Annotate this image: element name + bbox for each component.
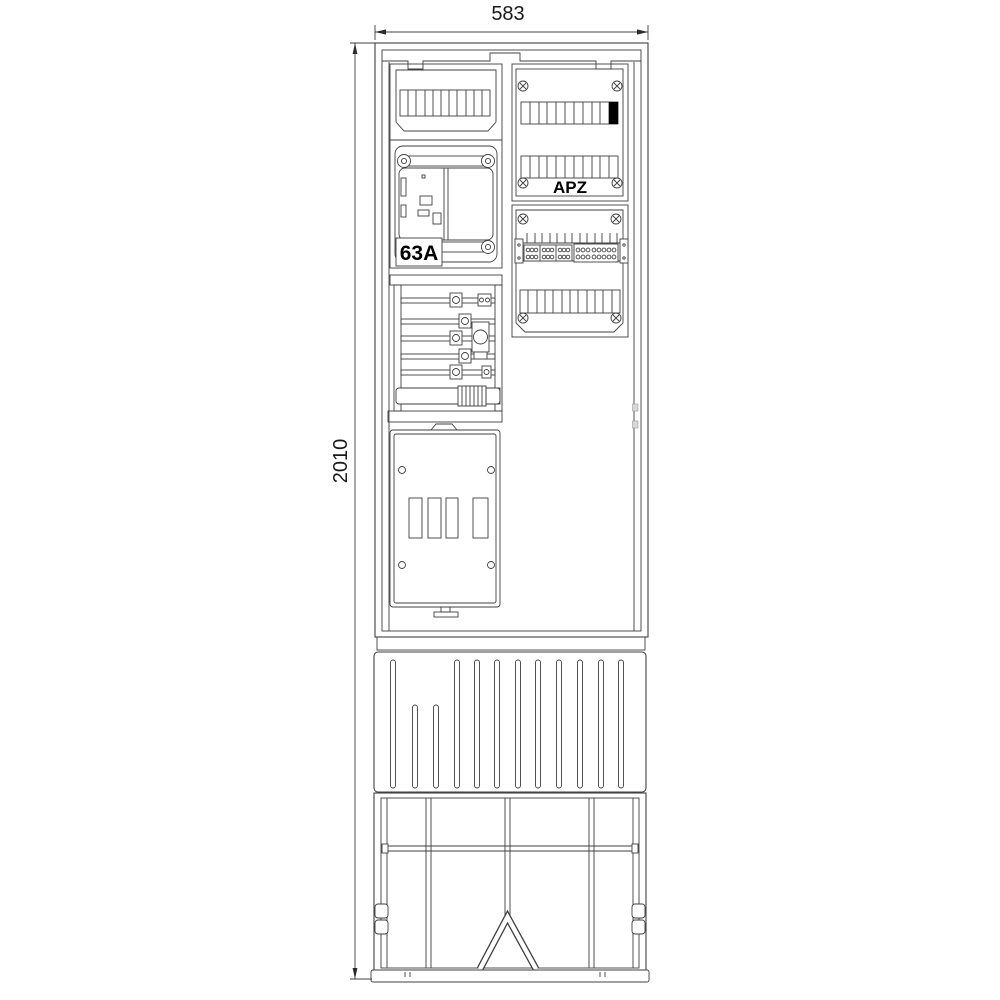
width-dimension-label: 583 [491, 3, 524, 25]
foundation-v-brace [480, 917, 536, 969]
din-cover-panel [390, 64, 502, 140]
dimension-width: 583 [375, 3, 648, 40]
base-foundation-section [374, 793, 646, 972]
terminal-panel [512, 205, 628, 337]
meter-body [399, 168, 493, 240]
upper-mount-bar [404, 156, 488, 166]
base-plate [371, 970, 649, 982]
apz-panel: APZ [512, 64, 628, 201]
module-strip [400, 90, 490, 116]
short-rib [434, 705, 439, 788]
shelf-band [388, 411, 502, 422]
panel-screw [518, 81, 622, 188]
dimension-height: 2010 [330, 43, 376, 979]
apz-module-row-1 [521, 102, 618, 124]
panel-screw [518, 214, 621, 323]
lower-door [390, 424, 500, 617]
hinge-marks [633, 404, 639, 428]
meter-panel: 63A [390, 140, 502, 268]
door-handle-bump [431, 424, 457, 430]
wire-dividers [527, 233, 617, 243]
breaker-rating-label: 63A [400, 242, 439, 265]
top-edge-profile [382, 53, 641, 69]
main-terminal [472, 322, 489, 352]
apz-module-row-2 [521, 156, 618, 178]
black-module [609, 102, 618, 124]
height-dimension-label: 2010 [330, 439, 352, 484]
meter-pillar-drawing: 63A [0, 0, 1000, 1000]
cable-clamp-bar [396, 386, 500, 406]
foundation-dividers [426, 798, 594, 968]
base-ribbed-section [374, 652, 646, 792]
busbar-assembly [388, 275, 502, 422]
apz-label: APZ [553, 178, 587, 197]
cabinet-shell [375, 43, 648, 650]
drawing-canvas: 63A [0, 0, 1000, 1000]
short-rib [413, 705, 418, 788]
door-foot [441, 607, 450, 612]
door-slots [409, 498, 488, 538]
terminal-block-right [574, 244, 618, 262]
terminal-block-left [524, 245, 572, 261]
lower-rail-band [377, 637, 645, 650]
